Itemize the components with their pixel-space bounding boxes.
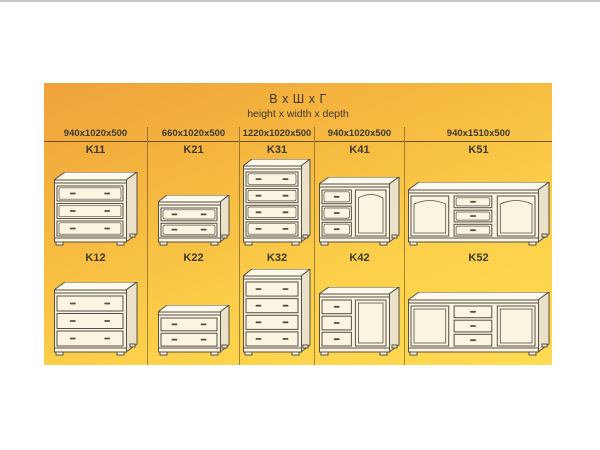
chest-3-drawing <box>54 172 138 246</box>
furniture-drawing <box>148 158 239 250</box>
furniture-drawing <box>148 266 239 360</box>
chest-4-drawing <box>243 159 311 246</box>
furniture-drawing <box>240 266 314 360</box>
page-subtitle: height x width x depth <box>44 108 552 120</box>
furniture-drawing <box>405 158 552 250</box>
model-code: K22 <box>148 250 239 266</box>
model-code: K41 <box>315 142 404 158</box>
page-header: В х Ш х Г height x width x depth <box>44 83 552 127</box>
model-code: K42 <box>315 250 404 266</box>
catalog-column-4: 940x1020x500 K41 K42 <box>315 127 405 365</box>
chest-2-drawing <box>158 305 230 356</box>
model-code: K31 <box>240 142 314 158</box>
catalog-grid: 940x1020x500 K11 K12 660x1020x500 K21 K2… <box>44 127 552 365</box>
column-dimensions: 660x1020x500 <box>148 127 239 142</box>
model-code: K11 <box>44 142 147 158</box>
sideboard-drawing <box>408 182 550 246</box>
page-title: В х Ш х Г <box>44 92 552 106</box>
model-code: K52 <box>405 250 552 266</box>
model-code: K21 <box>148 142 239 158</box>
catalog-column-2: 660x1020x500 K21 K22 <box>148 127 240 365</box>
chest-3-drawing <box>54 282 138 356</box>
catalog-page: В х Ш х Г height x width x depth 940x102… <box>44 83 552 365</box>
sideboard-drawing <box>408 292 550 356</box>
furniture-drawing <box>240 158 314 250</box>
furniture-drawing <box>44 158 147 250</box>
model-code: K51 <box>405 142 552 158</box>
furniture-drawing <box>315 158 404 250</box>
furniture-drawing <box>405 266 552 360</box>
column-dimensions: 940x1020x500 <box>44 127 147 142</box>
column-dimensions: 940x1020x500 <box>315 127 404 142</box>
furniture-drawing <box>44 266 147 360</box>
column-dimensions: 1220x1020x500 <box>240 127 314 142</box>
model-code: K32 <box>240 250 314 266</box>
catalog-column-1: 940x1020x500 K11 K12 <box>44 127 148 365</box>
scan-edge-line <box>0 0 600 2</box>
combo-drawing <box>319 287 400 356</box>
model-code: K12 <box>44 250 147 266</box>
catalog-column-5: 940x1510x500 K51 K52 <box>405 127 552 365</box>
chest-2-drawing <box>158 195 230 246</box>
column-dimensions: 940x1510x500 <box>405 127 552 142</box>
furniture-drawing <box>315 266 404 360</box>
combo-drawing <box>319 177 400 246</box>
catalog-column-3: 1220x1020x500 K31 K32 <box>240 127 315 365</box>
chest-4-drawing <box>243 269 311 356</box>
